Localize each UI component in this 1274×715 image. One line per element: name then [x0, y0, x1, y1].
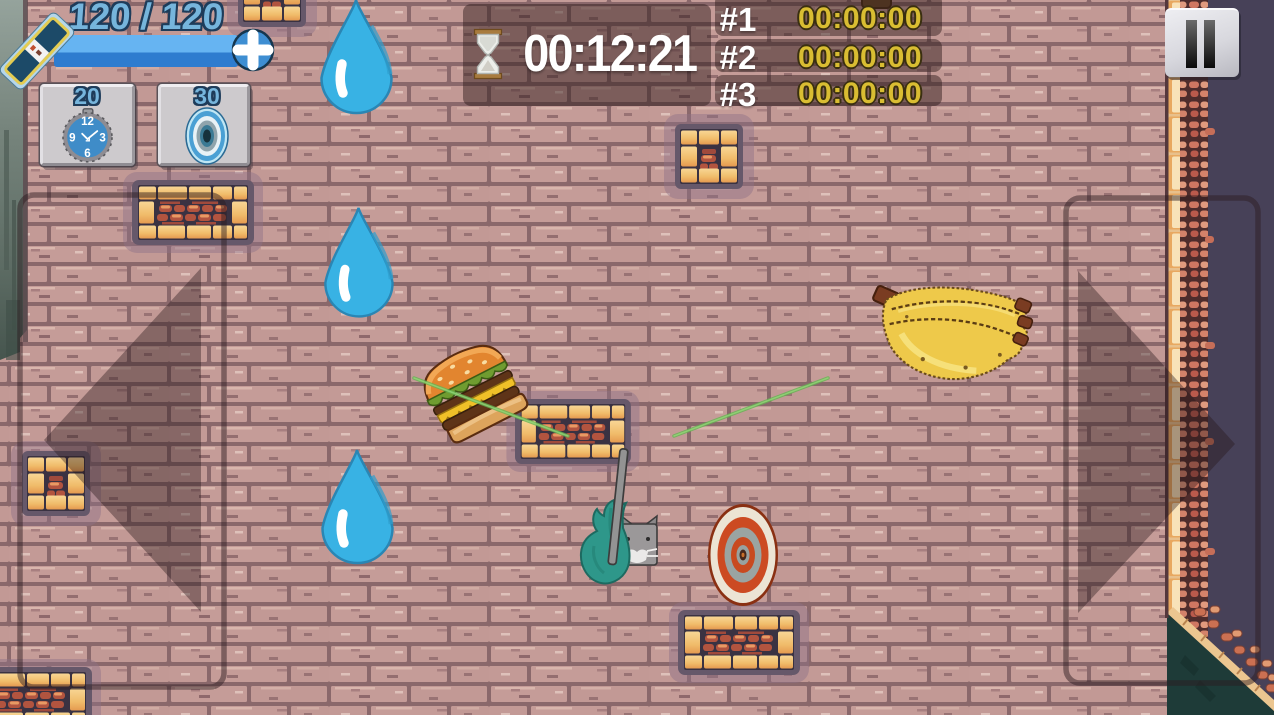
- svg-text:6: 6: [84, 148, 91, 160]
- svg-text:12: 12: [81, 116, 94, 128]
- svg-text:9: 9: [69, 133, 75, 145]
- svg-text:3: 3: [99, 133, 106, 145]
